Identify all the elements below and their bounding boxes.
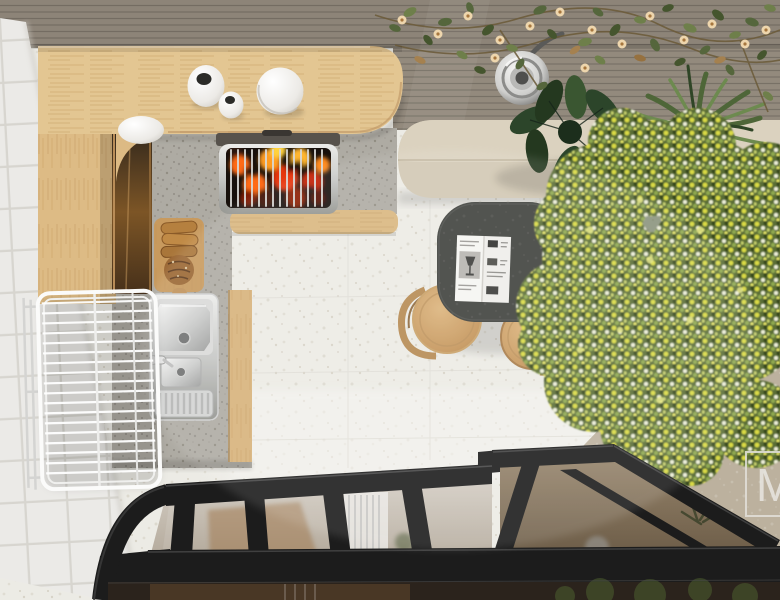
grill-handle	[262, 130, 292, 136]
wire-drying-rack	[23, 290, 160, 489]
vase-small-mouth	[225, 96, 235, 104]
vase-small	[219, 92, 244, 119]
watermark-letter: M	[756, 459, 780, 511]
inset-bowl	[118, 116, 164, 144]
vase-large	[188, 65, 225, 107]
scene: M	[0, 0, 780, 600]
render-canvas: M	[0, 0, 780, 600]
vase-large-mouth	[197, 73, 212, 85]
